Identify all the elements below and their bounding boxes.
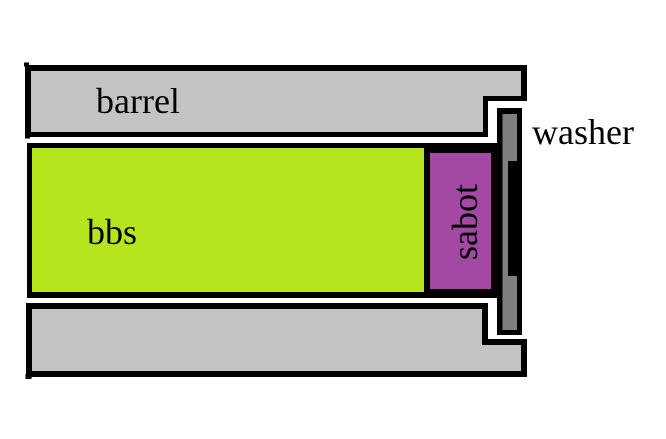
svg-text:bbs: bbs [87,212,137,252]
svg-text:sabot: sabot [445,184,485,260]
svg-text:washer: washer [532,112,634,152]
svg-text:barrel: barrel [96,81,180,121]
